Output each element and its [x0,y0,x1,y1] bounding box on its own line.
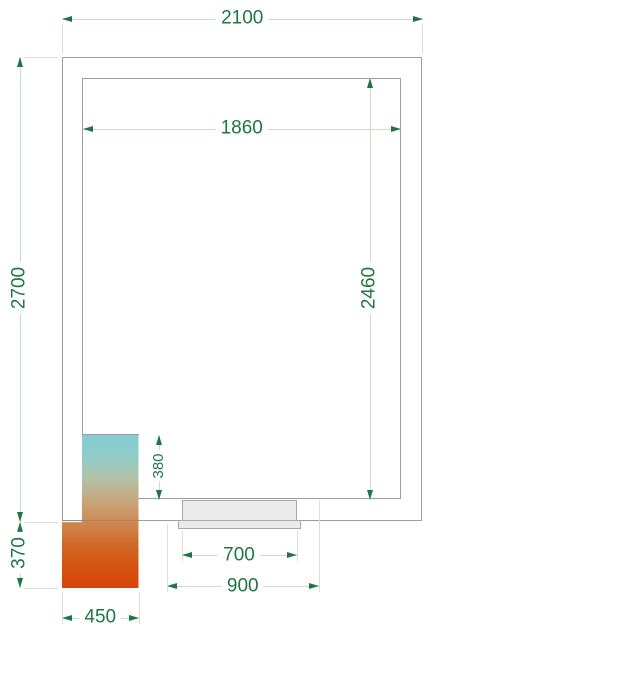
dim-label-outer-height: 2700 [10,262,31,314]
dim-unit-outside-depth-arrow-top-icon [17,522,23,532]
cooling-unit-top-edge [82,434,139,435]
dimension-unit-outside-depth: 370 [20,522,21,588]
floor-plan-canvas: 2100 1860 2700 370 2460 380 [0,0,627,700]
dimension-unit-width: 450 [62,618,139,619]
dimension-unit-inside-depth: 380 [159,435,160,500]
dimension-outer-height: 2700 [20,57,21,522]
dim-outer-width-arrow-right-icon [413,16,423,22]
dim-door-leaf-width-arrow-left-icon [182,552,192,558]
ext-line-unit-width-left [62,592,63,624]
ext-line-unit-width-right [139,592,140,624]
ext-line-outer-width-right [422,23,423,54]
dim-door-opening-width-arrow-left-icon [167,583,177,589]
ext-line-door-leaf-right [297,531,298,561]
dim-door-opening-width-arrow-right-icon [309,583,319,589]
dim-inner-width-arrow-right-icon [391,126,401,132]
dim-label-door-leaf-width: 700 [218,545,260,566]
dim-label-unit-outside-depth: 370 [10,532,31,574]
dim-outer-width-arrow-left-icon [62,16,72,22]
dimension-door-opening-width: 900 [167,586,320,587]
dimension-outer-width: 2100 [62,19,423,20]
dim-unit-width-arrow-left-icon [62,615,72,621]
ext-line-door-opening-right [319,500,320,592]
door-sill [178,520,301,529]
dim-label-inner-width: 1860 [216,119,268,140]
dim-inner-width-arrow-left-icon [83,126,93,132]
dim-outer-height-arrow-bottom-icon [17,512,23,522]
door-leaf [182,500,297,521]
ext-line-outer-height-top [24,57,58,58]
dim-inner-height-arrow-top-icon [367,78,373,88]
ext-line-outer-height-bottom [24,522,58,523]
wall-line-through-unit [62,520,139,521]
ext-line-door-opening-left [167,524,168,592]
dim-unit-inside-depth-arrow-bottom-icon [156,490,162,500]
dim-unit-inside-depth-arrow-top-icon [156,435,162,445]
dim-outer-height-arrow-top-icon [17,57,23,67]
dimension-inner-height: 2460 [370,78,371,500]
dim-unit-outside-depth-arrow-bottom-icon [17,578,23,588]
dim-label-outer-width: 2100 [216,9,268,30]
ext-line-door-leaf-left [182,531,183,561]
dim-label-unit-width: 450 [79,608,121,629]
dimension-inner-width: 1860 [83,129,402,130]
ext-line-unit-outside-depth-bottom [24,588,58,589]
dim-label-inner-height: 2460 [360,262,381,314]
ext-line-outer-width-left [62,23,63,54]
dim-inner-height-arrow-bottom-icon [367,490,373,500]
dimension-door-leaf-width: 700 [182,555,297,556]
dim-unit-width-arrow-right-icon [129,615,139,621]
dim-label-door-opening-width: 900 [222,576,264,597]
dim-label-unit-inside-depth: 380 [151,450,168,481]
dim-door-leaf-width-arrow-right-icon [287,552,297,558]
